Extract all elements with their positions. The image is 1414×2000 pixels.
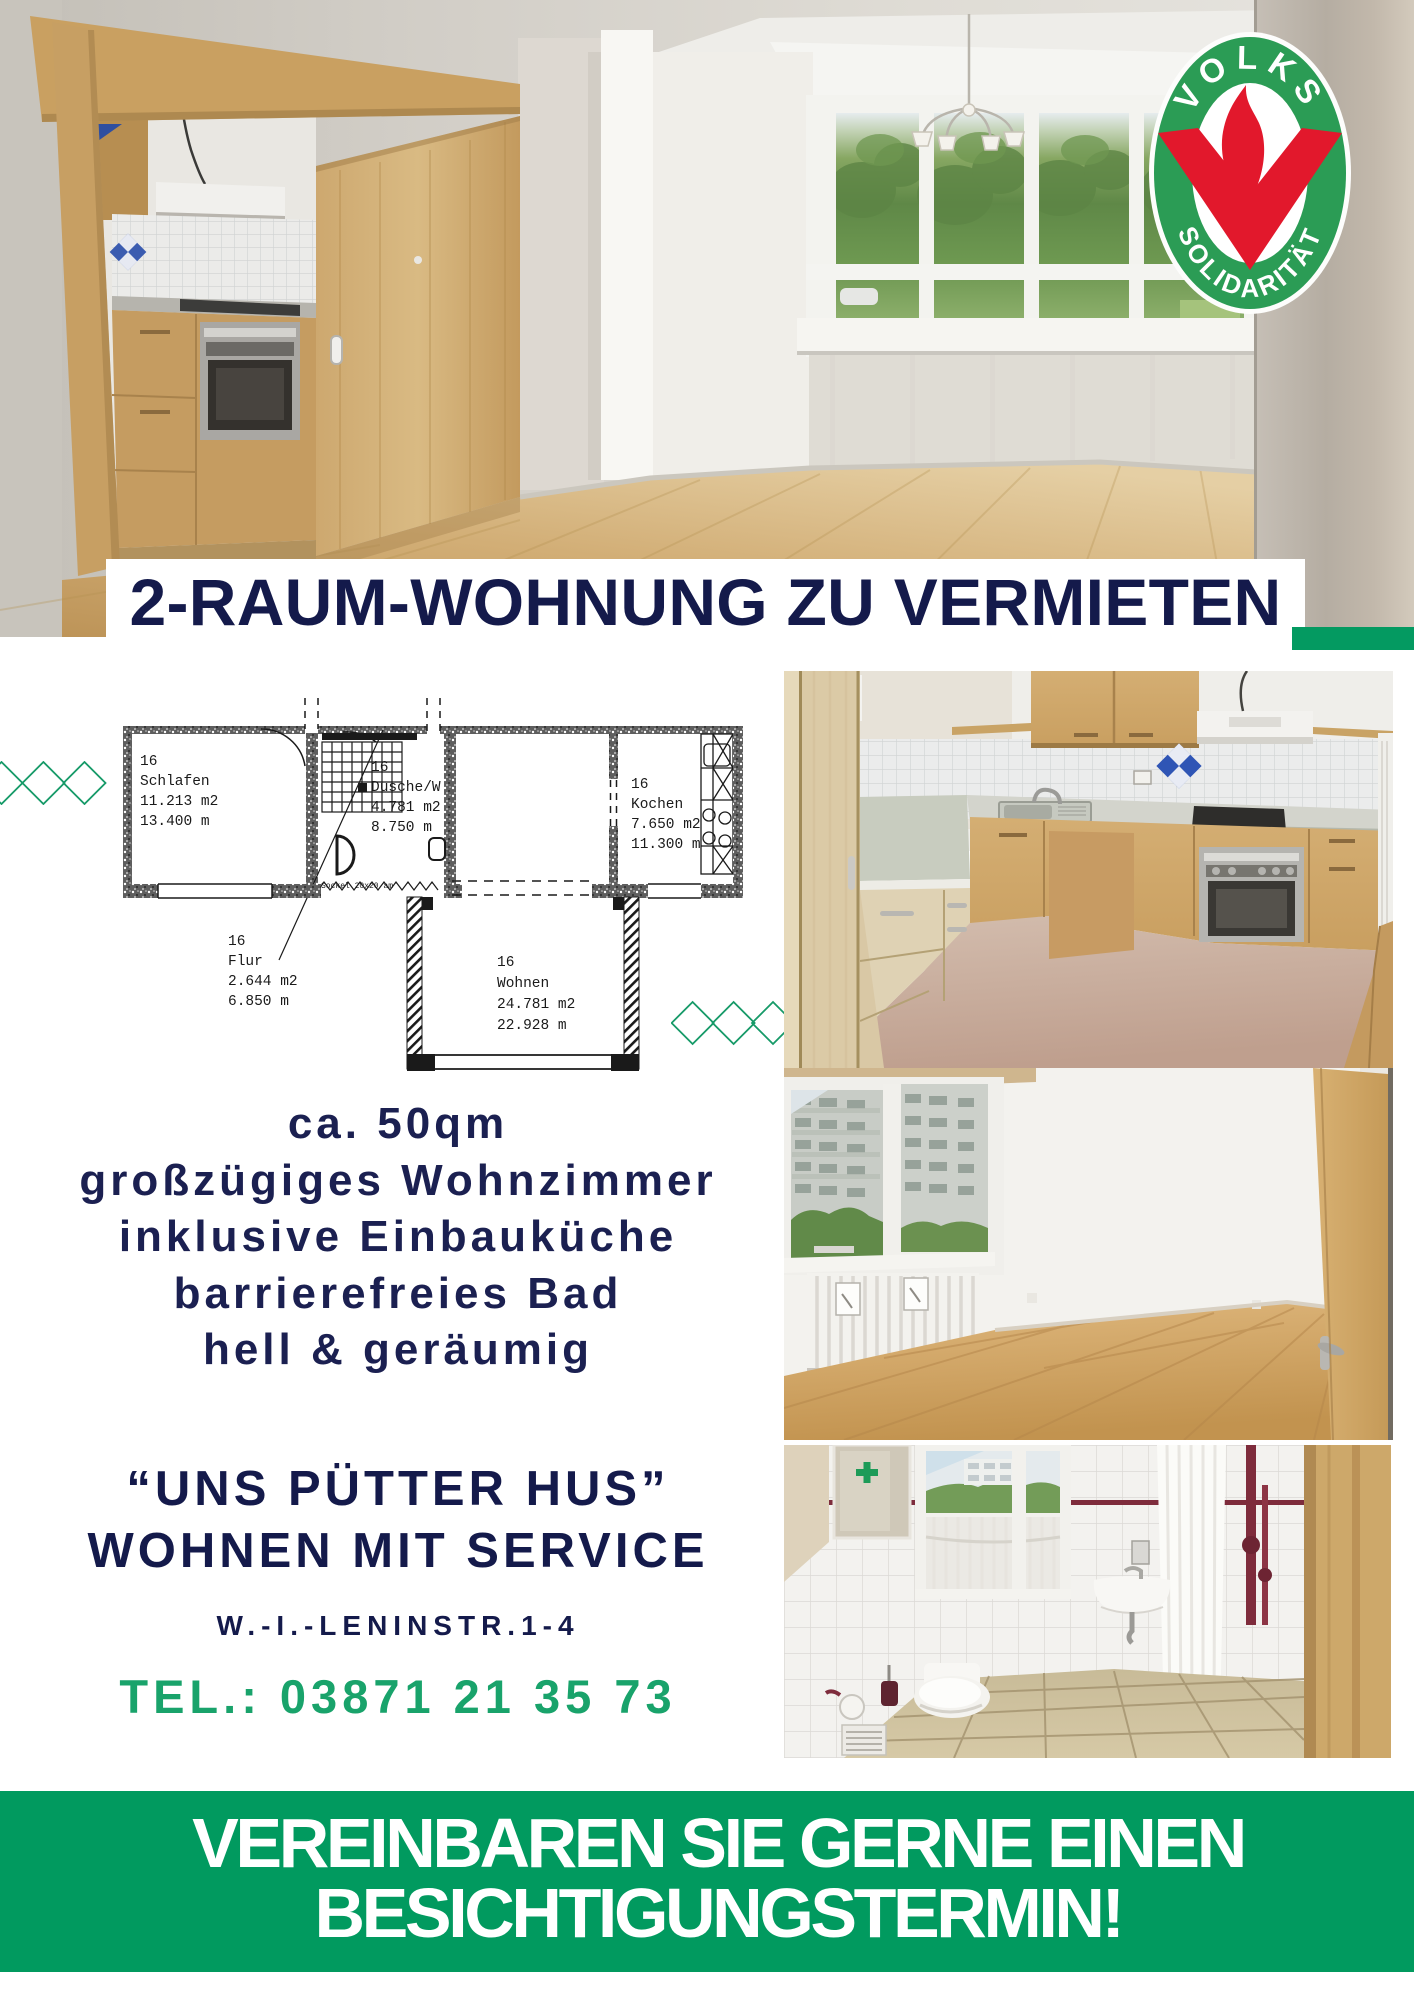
svg-text:2.644 m2: 2.644 m2: [228, 974, 298, 990]
svg-text:6.850 m: 6.850 m: [228, 994, 289, 1010]
svg-text:16: 16: [140, 754, 157, 770]
svg-text:13.400 m: 13.400 m: [140, 814, 210, 830]
svg-text:Schlafen: Schlafen: [140, 774, 210, 790]
svg-text:22.928 m: 22.928 m: [497, 1018, 567, 1034]
svg-text:Wohnen: Wohnen: [497, 976, 549, 992]
svg-text:16: 16: [497, 955, 514, 971]
svg-text:16: 16: [631, 777, 648, 793]
svg-text:24.781 m2: 24.781 m2: [497, 997, 575, 1013]
svg-text:16: 16: [228, 934, 245, 950]
svg-text:7.650 m2: 7.650 m2: [631, 817, 701, 833]
svg-text:Sockel 20x20 am: Sockel 20x20 am: [321, 882, 393, 891]
svg-text:16: 16: [371, 760, 388, 776]
svg-text:8.750 m: 8.750 m: [371, 820, 432, 836]
svg-text:Dusche/W: Dusche/W: [371, 780, 441, 796]
svg-text:Kochen: Kochen: [631, 797, 683, 813]
svg-text:4.781 m2: 4.781 m2: [371, 800, 441, 816]
svg-text:11.213 m2: 11.213 m2: [140, 794, 218, 810]
svg-text:11.300 m: 11.300 m: [631, 837, 701, 853]
svg-text:Flur: Flur: [228, 954, 263, 970]
